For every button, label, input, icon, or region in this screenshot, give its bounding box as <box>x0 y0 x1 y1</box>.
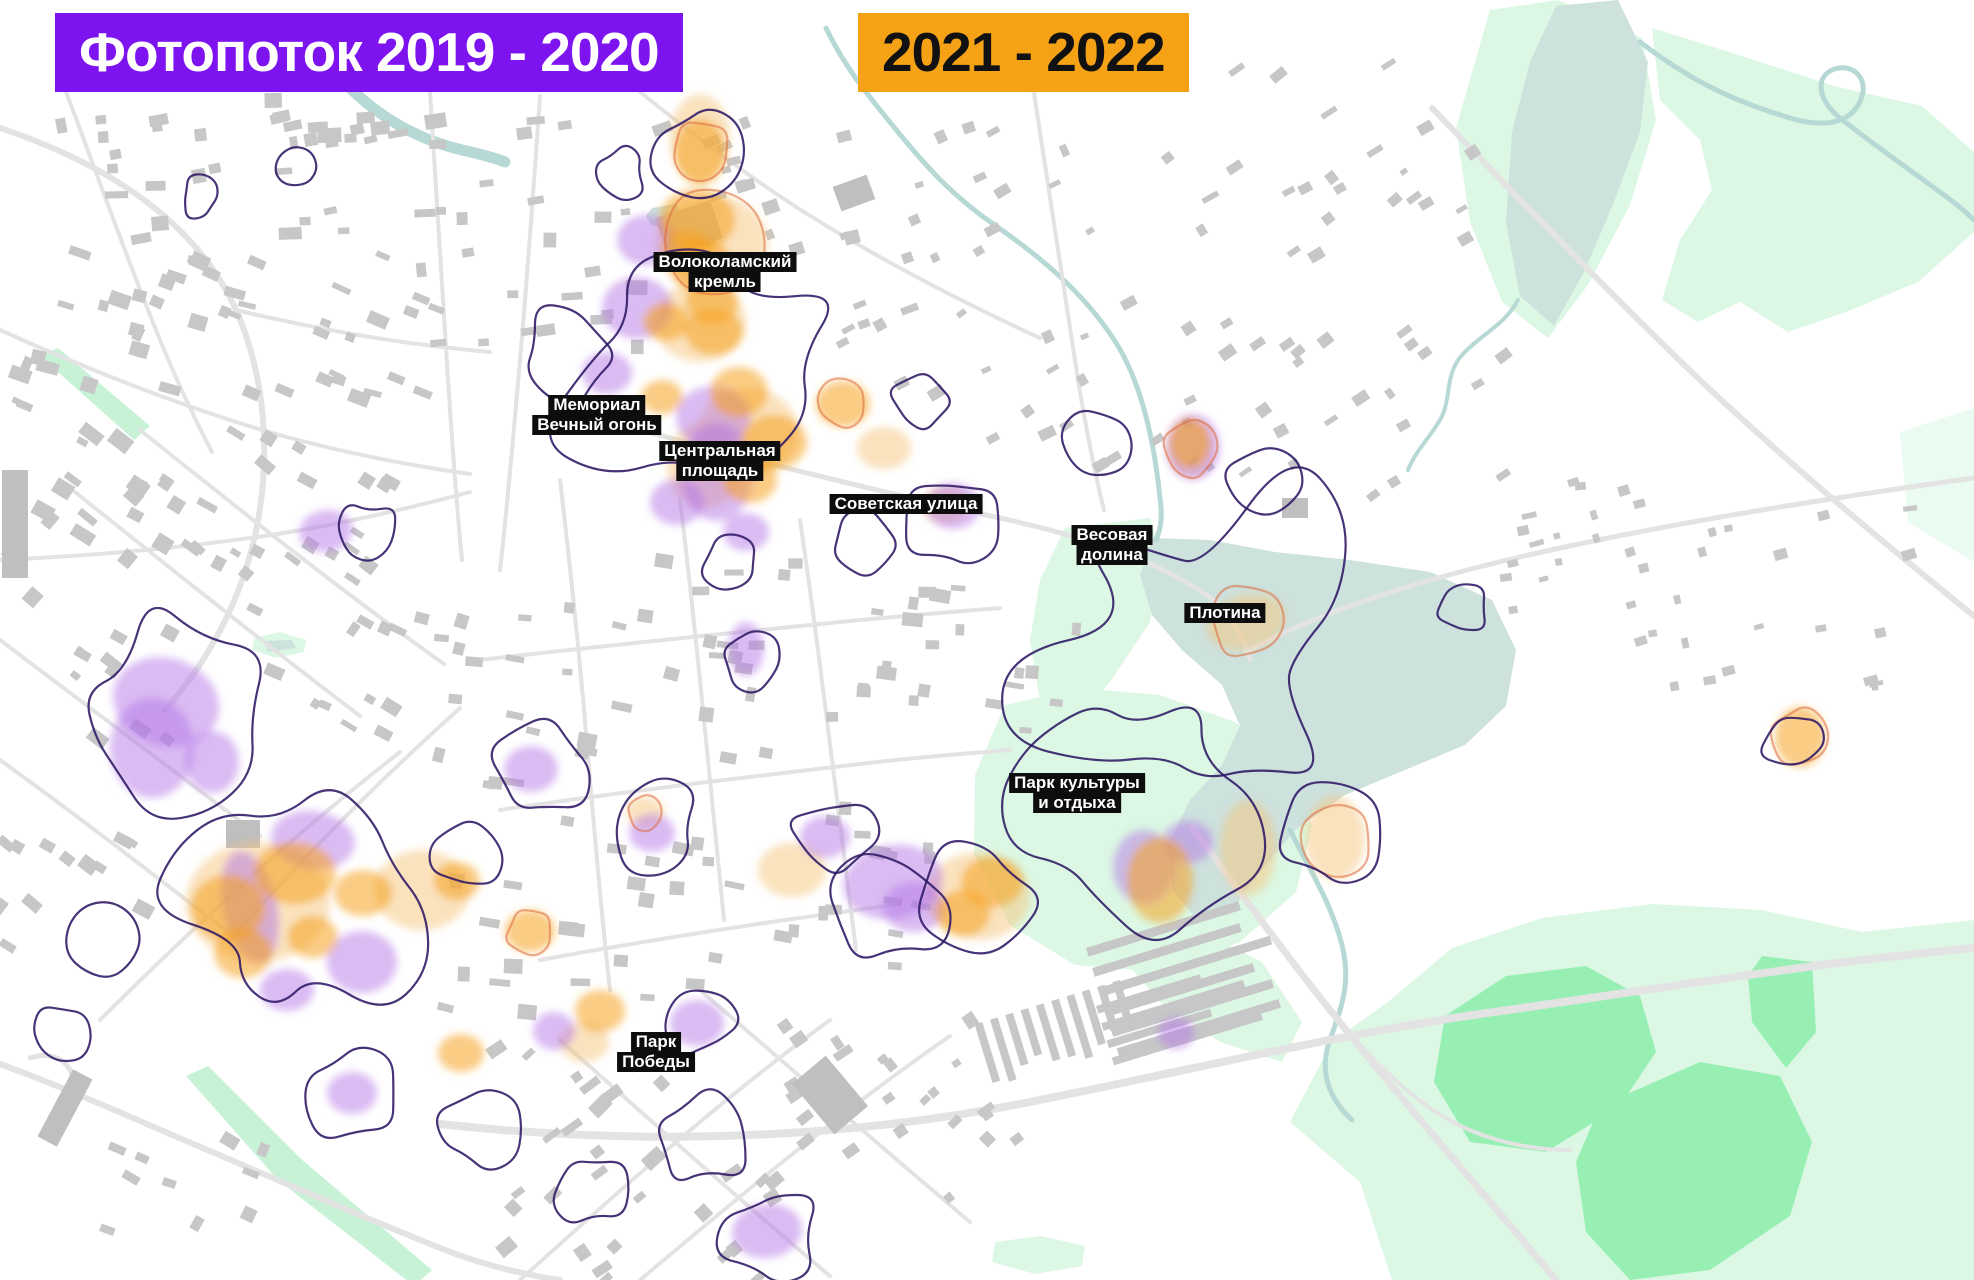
map-label: Плотина <box>1184 603 1265 623</box>
building <box>357 471 376 490</box>
building <box>413 385 433 399</box>
building <box>452 641 466 656</box>
building <box>461 247 474 257</box>
building <box>1753 623 1764 631</box>
building <box>1638 563 1650 574</box>
building <box>489 978 510 987</box>
building <box>434 634 449 642</box>
building <box>2 470 28 578</box>
building <box>1517 525 1530 537</box>
heat-blob-2019-2020 <box>504 746 558 792</box>
building <box>557 120 572 130</box>
building <box>1287 245 1301 258</box>
building <box>21 893 43 914</box>
building <box>1396 324 1412 339</box>
building <box>857 318 871 329</box>
building <box>128 340 150 359</box>
density-contour <box>835 509 896 576</box>
building <box>826 712 838 722</box>
building <box>1874 627 1887 638</box>
building <box>68 245 92 260</box>
building <box>1455 204 1468 214</box>
building <box>1273 423 1290 439</box>
building <box>1180 320 1196 336</box>
heat-blob-2019-2020 <box>729 1199 806 1262</box>
building <box>778 569 791 581</box>
map-label-line: Волоколамский <box>654 252 797 272</box>
building <box>331 282 351 295</box>
map-label-line: и отдыха <box>1033 793 1120 813</box>
building <box>796 1109 814 1126</box>
building <box>448 694 462 705</box>
legend-period-2021-2022: 2021 - 2022 <box>858 13 1189 92</box>
building <box>518 614 532 621</box>
building <box>240 1205 258 1223</box>
building <box>973 171 987 183</box>
building <box>1333 182 1347 195</box>
building <box>1773 548 1789 562</box>
building <box>238 301 256 310</box>
building <box>836 130 852 144</box>
building <box>98 299 110 312</box>
building <box>507 290 518 298</box>
building <box>356 111 375 123</box>
building <box>1634 635 1648 647</box>
building <box>151 532 175 555</box>
road <box>1032 80 1104 510</box>
building <box>900 302 919 315</box>
building <box>495 1236 518 1258</box>
building <box>1351 389 1370 407</box>
heat-blob-2021-2022 <box>214 928 272 978</box>
building <box>562 669 572 676</box>
building <box>1494 347 1512 365</box>
building <box>1050 698 1064 707</box>
building <box>1025 665 1039 679</box>
building <box>611 700 633 712</box>
building <box>888 962 902 971</box>
building <box>789 1030 808 1049</box>
building <box>951 1058 961 1068</box>
building <box>1387 192 1403 208</box>
building <box>777 1018 794 1035</box>
building <box>1457 231 1475 247</box>
building <box>653 1074 671 1092</box>
building <box>1080 332 1089 340</box>
building <box>956 308 967 318</box>
building <box>1624 546 1636 557</box>
building <box>454 613 470 630</box>
building <box>1697 546 1707 557</box>
building <box>872 317 887 332</box>
building <box>458 966 470 981</box>
building <box>1020 404 1035 419</box>
building <box>57 300 74 311</box>
building <box>690 836 704 850</box>
building <box>836 337 850 349</box>
green-area <box>992 1236 1085 1274</box>
building <box>194 128 207 142</box>
building <box>109 149 122 160</box>
building <box>373 725 393 742</box>
building <box>223 286 246 301</box>
building <box>986 432 1001 445</box>
building <box>993 183 1011 200</box>
building <box>590 1144 606 1159</box>
building <box>901 251 914 264</box>
map-label-line: Парк культуры <box>1009 773 1145 793</box>
building <box>1399 167 1408 175</box>
building <box>1669 681 1679 691</box>
heat-blob-2019-2020 <box>260 969 314 1011</box>
building <box>633 1191 647 1204</box>
building <box>902 612 924 627</box>
building <box>108 1141 127 1155</box>
building <box>1279 337 1295 352</box>
building <box>1218 343 1238 362</box>
building <box>1037 425 1057 442</box>
building <box>1872 685 1879 691</box>
building <box>909 695 919 706</box>
building <box>853 300 867 310</box>
photoflow-map-infographic: ВолоколамскийкремльМемориалВечный огоньЦ… <box>0 0 1974 1280</box>
building <box>1324 170 1339 185</box>
building <box>1019 727 1032 734</box>
road <box>236 310 490 352</box>
building <box>1404 337 1419 351</box>
road <box>430 92 462 560</box>
building <box>1282 186 1296 197</box>
building <box>226 425 245 441</box>
building <box>926 640 940 649</box>
building <box>503 880 522 891</box>
building <box>107 163 118 173</box>
building <box>558 921 579 937</box>
map-canvas <box>0 0 1974 1280</box>
heat-blob-2019-2020 <box>728 622 764 676</box>
building <box>246 603 263 617</box>
legend-period-2019-2020: Фотопоток 2019 - 2020 <box>55 13 683 92</box>
building <box>511 1186 526 1199</box>
building <box>1416 119 1434 136</box>
building <box>570 1071 583 1084</box>
building <box>160 623 180 642</box>
building <box>318 699 332 711</box>
building <box>1589 510 1598 521</box>
building <box>1387 475 1401 489</box>
building <box>961 121 976 135</box>
heat-blob-2021-2022 <box>961 857 1023 907</box>
building <box>1316 331 1334 349</box>
building <box>973 245 986 257</box>
density-contour <box>891 374 950 429</box>
building <box>1307 246 1326 263</box>
building <box>1633 498 1646 509</box>
building <box>323 206 337 216</box>
building <box>1817 510 1830 522</box>
building <box>247 255 267 271</box>
building <box>380 697 402 718</box>
building <box>506 710 524 721</box>
building <box>1681 637 1690 649</box>
building <box>162 1177 177 1189</box>
building <box>69 523 96 546</box>
heat-blob-2021-2022 <box>254 842 336 904</box>
building <box>1120 295 1138 311</box>
building <box>708 952 723 964</box>
building <box>692 586 709 595</box>
building <box>888 929 904 938</box>
building <box>627 876 646 891</box>
building <box>522 1047 536 1061</box>
building <box>77 508 98 527</box>
building <box>788 558 802 569</box>
building <box>121 1169 140 1185</box>
building <box>107 290 132 311</box>
building <box>297 472 318 490</box>
building <box>274 383 294 398</box>
density-contour <box>276 147 317 185</box>
building <box>735 178 756 194</box>
building <box>465 656 483 667</box>
building <box>930 252 941 263</box>
building <box>340 719 357 732</box>
map-label: ПаркПобеды <box>617 1032 695 1072</box>
map-label-line: Вечный огонь <box>532 415 661 435</box>
building <box>612 621 627 631</box>
building <box>1555 558 1563 566</box>
heat-blob-2021-2022 <box>1127 837 1193 923</box>
building <box>151 215 169 231</box>
heat-blob-2019-2020 <box>185 731 239 793</box>
building <box>1815 624 1827 632</box>
building <box>564 602 575 614</box>
building <box>854 831 870 839</box>
building <box>416 262 427 277</box>
building <box>1321 211 1336 226</box>
building <box>504 1199 523 1218</box>
building <box>1901 548 1918 562</box>
building <box>1529 539 1545 548</box>
building <box>504 958 523 974</box>
building <box>526 116 545 125</box>
building <box>149 294 165 309</box>
map-label-line: Плотина <box>1184 603 1265 623</box>
building <box>166 495 186 515</box>
building <box>303 132 318 147</box>
building <box>631 340 644 355</box>
building <box>1071 622 1081 635</box>
building <box>918 587 936 598</box>
building <box>317 127 342 143</box>
building <box>1195 223 1208 237</box>
building <box>148 113 169 127</box>
heat-blob-2021-2022 <box>1170 418 1210 468</box>
heat-blob-2019-2020 <box>1158 1017 1194 1049</box>
building <box>841 323 855 334</box>
building <box>759 747 774 760</box>
building <box>189 1215 205 1232</box>
building <box>99 1223 116 1236</box>
building <box>516 126 533 140</box>
building <box>833 175 876 212</box>
building <box>55 117 68 133</box>
map-label-line: Парк <box>631 1032 682 1052</box>
building <box>527 195 544 205</box>
building <box>882 1092 896 1105</box>
building <box>346 621 361 637</box>
heat-blob-2019-2020 <box>650 479 704 525</box>
building <box>724 569 743 575</box>
building <box>414 209 435 218</box>
building <box>917 684 931 698</box>
building <box>0 897 9 915</box>
green-area <box>40 348 150 440</box>
building <box>134 1152 149 1165</box>
heat-blob-2021-2022 <box>438 1034 484 1072</box>
building <box>1041 329 1055 344</box>
building <box>254 454 276 475</box>
building <box>70 670 81 681</box>
building <box>842 1142 861 1160</box>
building <box>1648 629 1657 637</box>
building <box>344 572 361 586</box>
heat-blob-2021-2022 <box>857 427 911 469</box>
building <box>1048 179 1061 189</box>
building <box>1553 532 1561 539</box>
building <box>349 123 364 136</box>
building <box>663 666 680 682</box>
building <box>1292 356 1304 368</box>
heat-blob-2019-2020 <box>327 1072 377 1114</box>
building <box>594 212 611 223</box>
building <box>818 906 828 921</box>
heat-blob-2021-2022 <box>710 367 768 417</box>
building <box>702 857 714 867</box>
building <box>934 129 948 144</box>
building <box>479 179 494 187</box>
heat-blob-2021-2022 <box>685 309 743 355</box>
building <box>424 112 447 130</box>
building <box>1282 498 1308 518</box>
building <box>1320 106 1337 120</box>
map-label-line: Центральная <box>659 441 780 461</box>
building <box>1009 1132 1024 1146</box>
building <box>761 198 780 215</box>
map-label-line: Весовая <box>1072 525 1153 545</box>
building <box>1707 527 1717 537</box>
building <box>1499 573 1512 582</box>
building <box>881 661 891 676</box>
building <box>607 843 627 854</box>
heat-blob-2021-2022 <box>816 381 870 427</box>
building <box>981 366 992 375</box>
water-layer <box>264 0 1648 918</box>
building <box>1617 484 1631 497</box>
density-contour <box>66 902 139 977</box>
building <box>210 555 227 573</box>
building <box>1495 468 1511 482</box>
building <box>919 1094 931 1106</box>
map-label-line: долина <box>1076 545 1148 565</box>
building <box>614 955 629 968</box>
building <box>105 191 128 199</box>
building <box>146 181 166 191</box>
building <box>436 207 446 215</box>
building <box>620 208 630 215</box>
building <box>1396 418 1411 432</box>
building <box>927 384 947 402</box>
map-label: Центральнаяплощадь <box>659 441 780 481</box>
building <box>39 838 57 854</box>
building <box>1384 387 1396 399</box>
building <box>1508 606 1518 615</box>
building <box>1673 594 1682 604</box>
building <box>377 620 393 636</box>
building <box>196 497 218 514</box>
building <box>726 156 742 167</box>
building <box>403 305 420 319</box>
building <box>914 181 924 189</box>
building <box>1226 159 1244 175</box>
building <box>669 881 684 895</box>
building <box>1366 144 1383 158</box>
building <box>955 624 964 635</box>
building <box>429 140 446 149</box>
building <box>1269 66 1288 84</box>
building <box>157 474 175 492</box>
building <box>1724 524 1733 532</box>
road <box>540 904 900 960</box>
building <box>1255 401 1272 418</box>
building <box>263 662 285 681</box>
building <box>698 706 714 722</box>
river <box>1408 300 1518 470</box>
building <box>591 1165 609 1181</box>
map-label-line: Победы <box>617 1052 695 1072</box>
building <box>1059 418 1074 432</box>
map-label-line: площадь <box>677 461 763 481</box>
building <box>0 938 17 954</box>
building <box>187 313 208 332</box>
building <box>739 116 751 130</box>
building <box>606 1239 622 1255</box>
building <box>719 751 737 765</box>
building <box>366 310 390 330</box>
building <box>264 93 282 108</box>
density-contour <box>596 146 643 200</box>
map-label: МемориалВечный огонь <box>532 395 661 435</box>
building <box>1721 665 1735 677</box>
building <box>526 726 541 736</box>
building <box>478 338 489 346</box>
building <box>1575 482 1587 491</box>
building <box>573 1243 592 1262</box>
building <box>109 629 127 645</box>
building <box>412 292 431 306</box>
building <box>1220 317 1234 329</box>
building <box>1381 58 1397 71</box>
building <box>1059 144 1070 158</box>
building <box>279 227 302 240</box>
building <box>644 855 660 867</box>
building <box>637 609 654 624</box>
building <box>430 339 446 347</box>
heat-blob-2021-2022 <box>575 990 625 1032</box>
building <box>230 547 242 557</box>
building <box>560 815 574 827</box>
building <box>1183 394 1196 405</box>
